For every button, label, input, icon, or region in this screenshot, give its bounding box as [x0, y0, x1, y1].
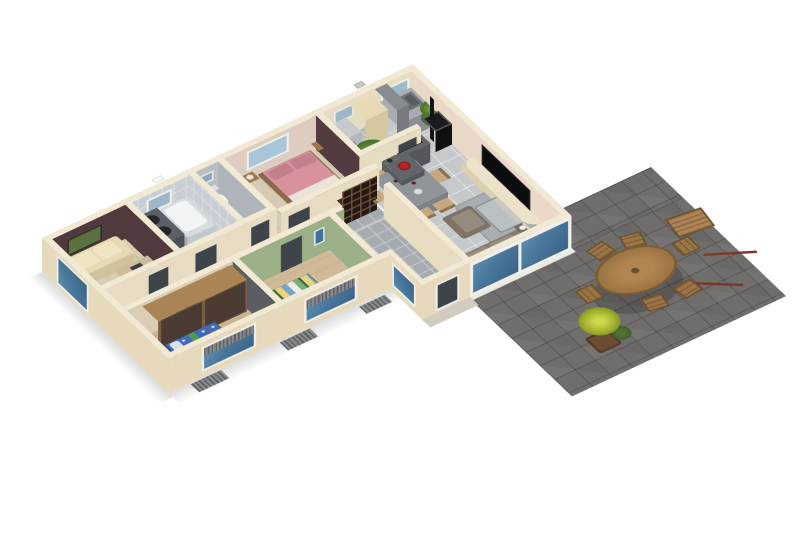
slider-mullion	[518, 243, 521, 272]
floor-plan-render	[0, 0, 800, 560]
kid2-wall-poster	[314, 226, 325, 246]
